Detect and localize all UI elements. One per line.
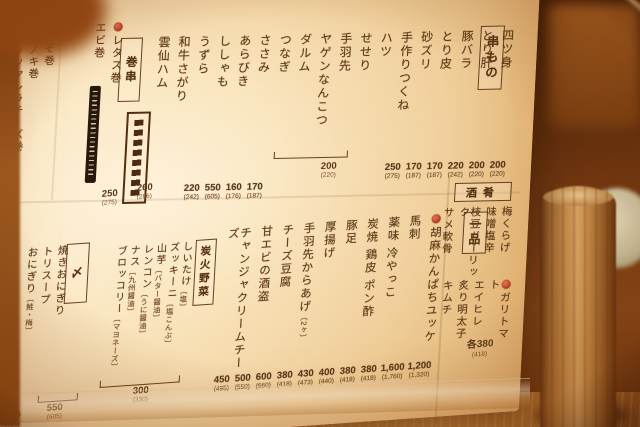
menu-item: 豚足 <box>337 219 357 370</box>
menu-item: チーズ豆腐 <box>273 223 293 374</box>
recommend-badge <box>431 214 440 224</box>
price: 170(187) <box>404 162 423 180</box>
kushimono-prices-left: 220(242)550(605)160(176)170(187) <box>182 182 264 201</box>
menu-item: エノキ巻 <box>27 32 39 222</box>
item-note: 〔マヨネーズ〕 <box>110 314 122 371</box>
price: 250 (275) <box>100 189 119 208</box>
item-note: 〔バター醤油〕 <box>151 266 163 323</box>
item-note: 〔塩こんぶ〕 <box>163 299 175 348</box>
sumibi-yasai-items: しいたけ〔塩〕ズッキーニ〔塩こんぶ〕山芋〔バター醤油〕レンコン〔うに醤油〕ナス〔… <box>109 241 191 396</box>
menu-item: とり皮 <box>432 30 453 182</box>
menu-item: 枝豆ガーリック <box>454 206 480 281</box>
menu-item: 馬刺 <box>400 214 420 365</box>
izakaya-menu-photo: 串もの 四ツ身とり肝豚バラとり皮砂ズリ手作りつくねハツせせり手羽先ヤゲンなんこつ… <box>0 0 640 427</box>
left-edge-shadow <box>0 0 20 427</box>
wooden-cylinder-holder <box>540 186 616 427</box>
menu-item: 薬味 冷やっこ <box>379 216 399 367</box>
price: 220(242) <box>182 184 201 202</box>
price: 170(187) <box>245 182 264 200</box>
price: 380(418) <box>338 366 357 385</box>
section-header-shukou: 酒肴 <box>454 182 512 202</box>
menu-item: 手羽先からあげ〔2ヶ〕 <box>294 222 314 373</box>
price: 1,200(1,320) <box>407 361 432 380</box>
menu-item: 甘エビの酒盗 <box>252 225 272 376</box>
menu-item: しそ巻 <box>42 31 54 221</box>
menu-item: うずら <box>190 35 211 187</box>
price: 250(275) <box>383 163 402 181</box>
price: 200(220) <box>488 161 507 179</box>
menu-item: 厚揚げ <box>316 220 336 371</box>
menu-item: 砂ズリ <box>412 30 433 182</box>
recommend-badge <box>501 280 510 289</box>
menu-item: キムチ <box>438 280 453 350</box>
blurred-background-object <box>548 4 640 128</box>
shukou-row1-items: 梅くらげ味噌塩辛枝豆ガーリックサメ軟骨 <box>440 206 512 282</box>
kushimono-prices-right: 250(275)170(187)170(187)220(242)200(220)… <box>383 161 507 181</box>
item-note: 〔鮭・梅〕 <box>24 294 35 335</box>
menu-item: とり肝 <box>473 29 494 181</box>
ippin-items: 胡麻かんぱちユッケ馬刺薬味 冷やっこ炭焼 鶏皮 ポン酢豚足厚揚げ手羽先からあげ〔… <box>218 213 442 378</box>
menu-item: 味噌塩辛 <box>481 206 496 281</box>
price: 550(605) <box>203 183 222 201</box>
menu-item: 炭焼 鶏皮 ポン酢 <box>358 217 378 368</box>
menu-item: ダルム <box>291 33 312 185</box>
menu-item: 和牛さがり <box>169 35 190 187</box>
item-note: 〔塩〕 <box>178 287 188 312</box>
item-note: 〔2ヶ〕 <box>298 313 309 342</box>
menu-item: ししゃも <box>210 35 231 187</box>
menu-item: 手作りつくね <box>392 31 413 183</box>
price: 260 (286) <box>135 183 154 202</box>
recommend-badge <box>113 22 122 31</box>
price: 170(187) <box>425 162 444 180</box>
menu-item: ささみ <box>250 34 271 186</box>
menu-item: せせり <box>351 32 372 184</box>
menu-item: ハツ <box>372 31 393 183</box>
section-header-sumibi-yasai: 炭火野菜 <box>192 239 217 306</box>
menu-item: 豚バラ <box>452 30 473 182</box>
price: 160(176) <box>224 183 243 201</box>
menu-item: あらびき <box>230 34 251 186</box>
price: 1,600(1,760) <box>380 363 405 382</box>
item-note: 〔うに醤油〕 <box>138 290 150 339</box>
price: 200(220) <box>467 161 486 179</box>
price: 200 (220) <box>319 162 338 180</box>
price: 380(418) <box>359 364 378 383</box>
price-all: 各380 (418) <box>466 339 494 359</box>
item-note: 〔九州醤油〕 <box>126 267 138 316</box>
price: 220(242) <box>446 161 465 179</box>
menu-item: つなぎ <box>271 33 292 185</box>
price-bracket <box>274 151 348 159</box>
